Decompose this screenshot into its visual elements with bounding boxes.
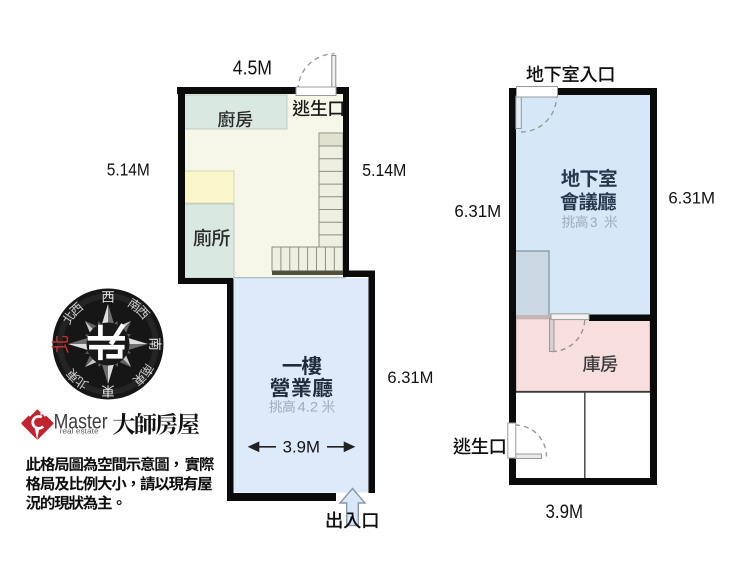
svg-text:6.31M: 6.31M [387, 368, 433, 387]
svg-text:5.14M: 5.14M [362, 160, 406, 180]
svg-text:3: 3 [590, 215, 597, 230]
svg-text:3.9M: 3.9M [546, 502, 584, 523]
svg-text:4.5M: 4.5M [233, 58, 272, 80]
svg-text:6.31M: 6.31M [668, 190, 715, 208]
svg-text:6.31M: 6.31M [454, 201, 501, 221]
svg-text:5.14M: 5.14M [107, 160, 150, 180]
svg-text:real estate: real estate [60, 427, 99, 436]
svg-text:4.2: 4.2 [298, 400, 319, 415]
svg-text:3.9M: 3.9M [283, 437, 320, 456]
